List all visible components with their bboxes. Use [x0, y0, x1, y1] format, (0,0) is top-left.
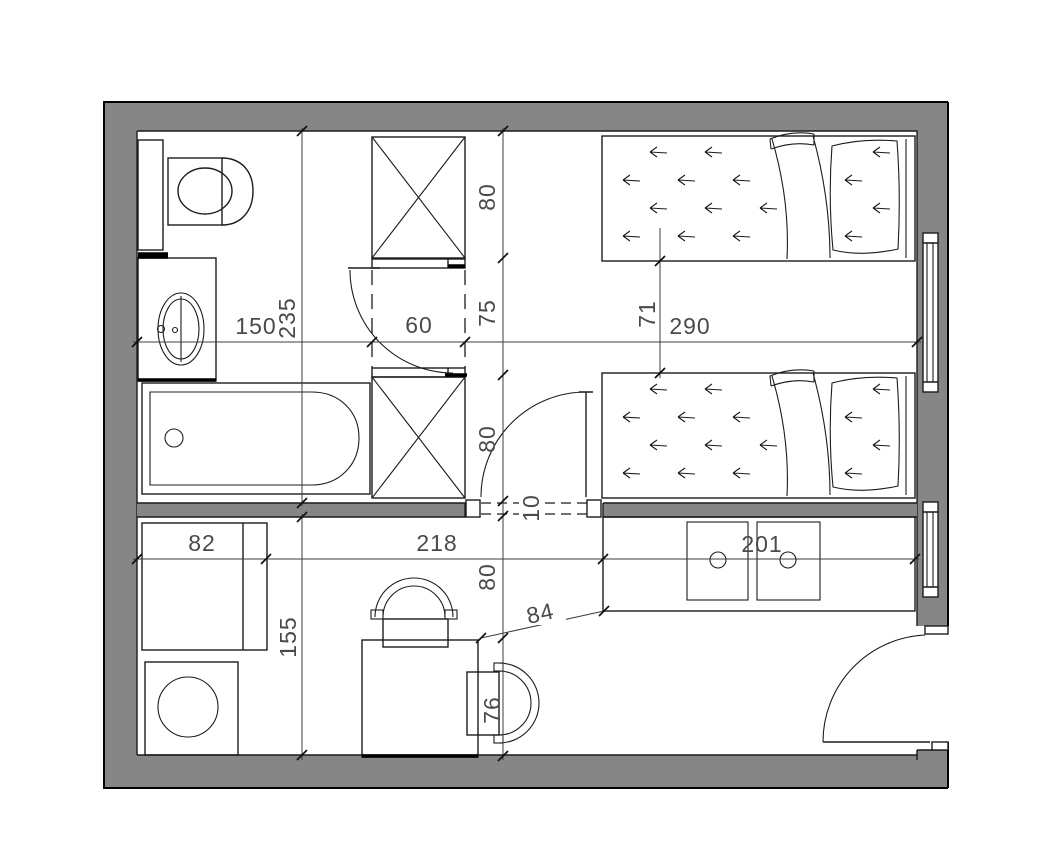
bed-1	[602, 133, 915, 261]
dim-80-top: 80	[474, 183, 500, 211]
dim-235: 235	[274, 297, 300, 338]
closet-bottom	[372, 368, 467, 498]
bathtub	[142, 383, 370, 494]
dim-80-bottom: 80	[474, 563, 500, 591]
floor-plan-page: 150 60 290 82 218 201 235 155 71 80 75 8…	[0, 0, 1039, 859]
closet-top	[372, 137, 465, 268]
dim-71: 71	[634, 300, 660, 328]
bed-2	[602, 370, 915, 498]
dim-10: 10	[518, 494, 544, 522]
dim-201: 201	[741, 531, 782, 557]
dim-155: 155	[275, 616, 301, 657]
chair-top	[371, 578, 457, 647]
dim-60: 60	[405, 312, 433, 338]
washing-machine	[145, 662, 238, 755]
dim-290: 290	[669, 313, 710, 339]
dimension-lines	[132, 126, 922, 761]
floor-plan-canvas: 150 60 290 82 218 201 235 155 71 80 75 8…	[0, 0, 1039, 859]
window-2	[923, 502, 938, 597]
toilet	[138, 140, 253, 254]
vanity-sink	[138, 257, 216, 381]
dim-75: 75	[474, 299, 500, 327]
dim-150: 150	[235, 313, 276, 339]
dimension-labels: 150 60 290 82 218 201 235 155 71 80 75 8…	[188, 183, 782, 724]
dim-80-mid: 80	[474, 425, 500, 453]
window-1	[923, 233, 938, 392]
pillow-2	[830, 377, 899, 490]
desk	[362, 640, 478, 757]
dim-82: 82	[188, 530, 216, 556]
entrance-door	[823, 626, 948, 750]
dim-76: 76	[479, 696, 505, 724]
dim-218: 218	[416, 530, 457, 556]
pillow-1	[830, 140, 899, 253]
